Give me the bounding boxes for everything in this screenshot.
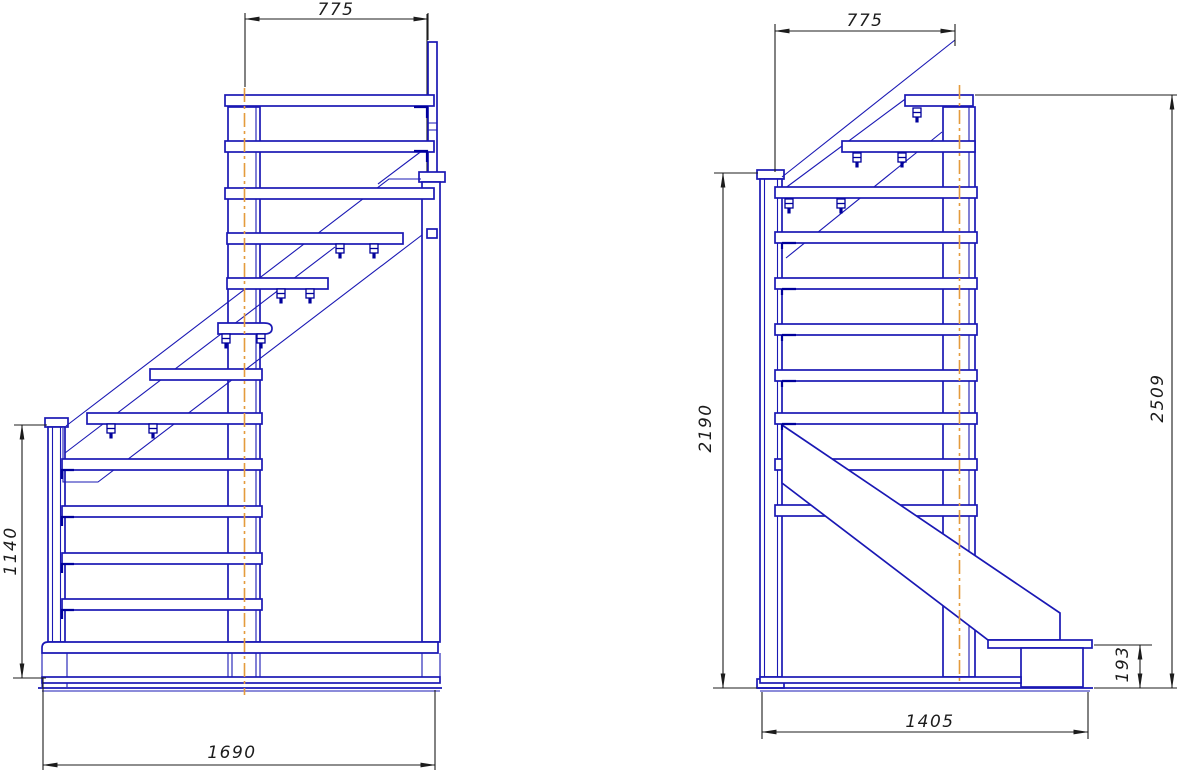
right-view-hooks [782,243,796,430]
dim-label-2509: 2509 [1148,373,1168,422]
tread [775,232,977,243]
tread [775,370,977,381]
dim-label-1140: 1140 [1,526,21,575]
left-post-cap [757,170,784,179]
tread [62,459,262,470]
left-view-base [38,642,442,691]
tread [225,141,434,152]
tread [87,413,262,424]
right-post-cap [419,172,445,182]
tread [905,95,973,106]
dim-label-2190: 2190 [696,403,716,452]
stringer-top-edge [782,40,955,177]
platform-board [988,640,1092,648]
tread-hook [782,289,796,295]
tread-hook [414,107,427,118]
bottom-rail [42,677,440,683]
bottom-rail [760,677,1021,683]
extension-lines [13,13,1177,770]
tread [225,188,434,199]
tread [775,278,977,289]
drawing-canvas: 775 1140 1690 775 2190 2509 193 1405 [0,0,1178,771]
tread-hook [782,335,796,341]
dim-label-193: 193 [1113,646,1133,683]
tread [62,599,262,610]
dim-label-1690: 1690 [207,743,256,763]
tread [227,278,328,289]
dimensions: 775 1140 1690 775 2190 2509 193 1405 [1,0,1177,770]
newel-post-cap [45,418,68,427]
base-beam [42,642,438,653]
tread [775,324,977,335]
staircase-technical-drawing: 775 1140 1690 775 2190 2509 193 1405 [0,0,1178,771]
tread [62,553,262,564]
platform-box [1021,648,1083,687]
tread [227,233,403,244]
dim-label-1405: 1405 [905,712,954,732]
tread [775,413,977,424]
tread-hook [782,381,796,387]
wall-strip-end [427,229,437,238]
dim-label-775-left: 775 [318,0,355,20]
right-view [757,40,1093,691]
tread [225,95,434,106]
left-post [760,179,782,677]
dim-label-775-right: 775 [847,11,884,31]
tread [842,141,975,152]
lower-stringer-board [782,425,1060,640]
tread [62,506,262,517]
tread [775,187,977,198]
right-post [422,182,440,642]
tread-hook [782,243,796,249]
left-view [38,14,445,695]
